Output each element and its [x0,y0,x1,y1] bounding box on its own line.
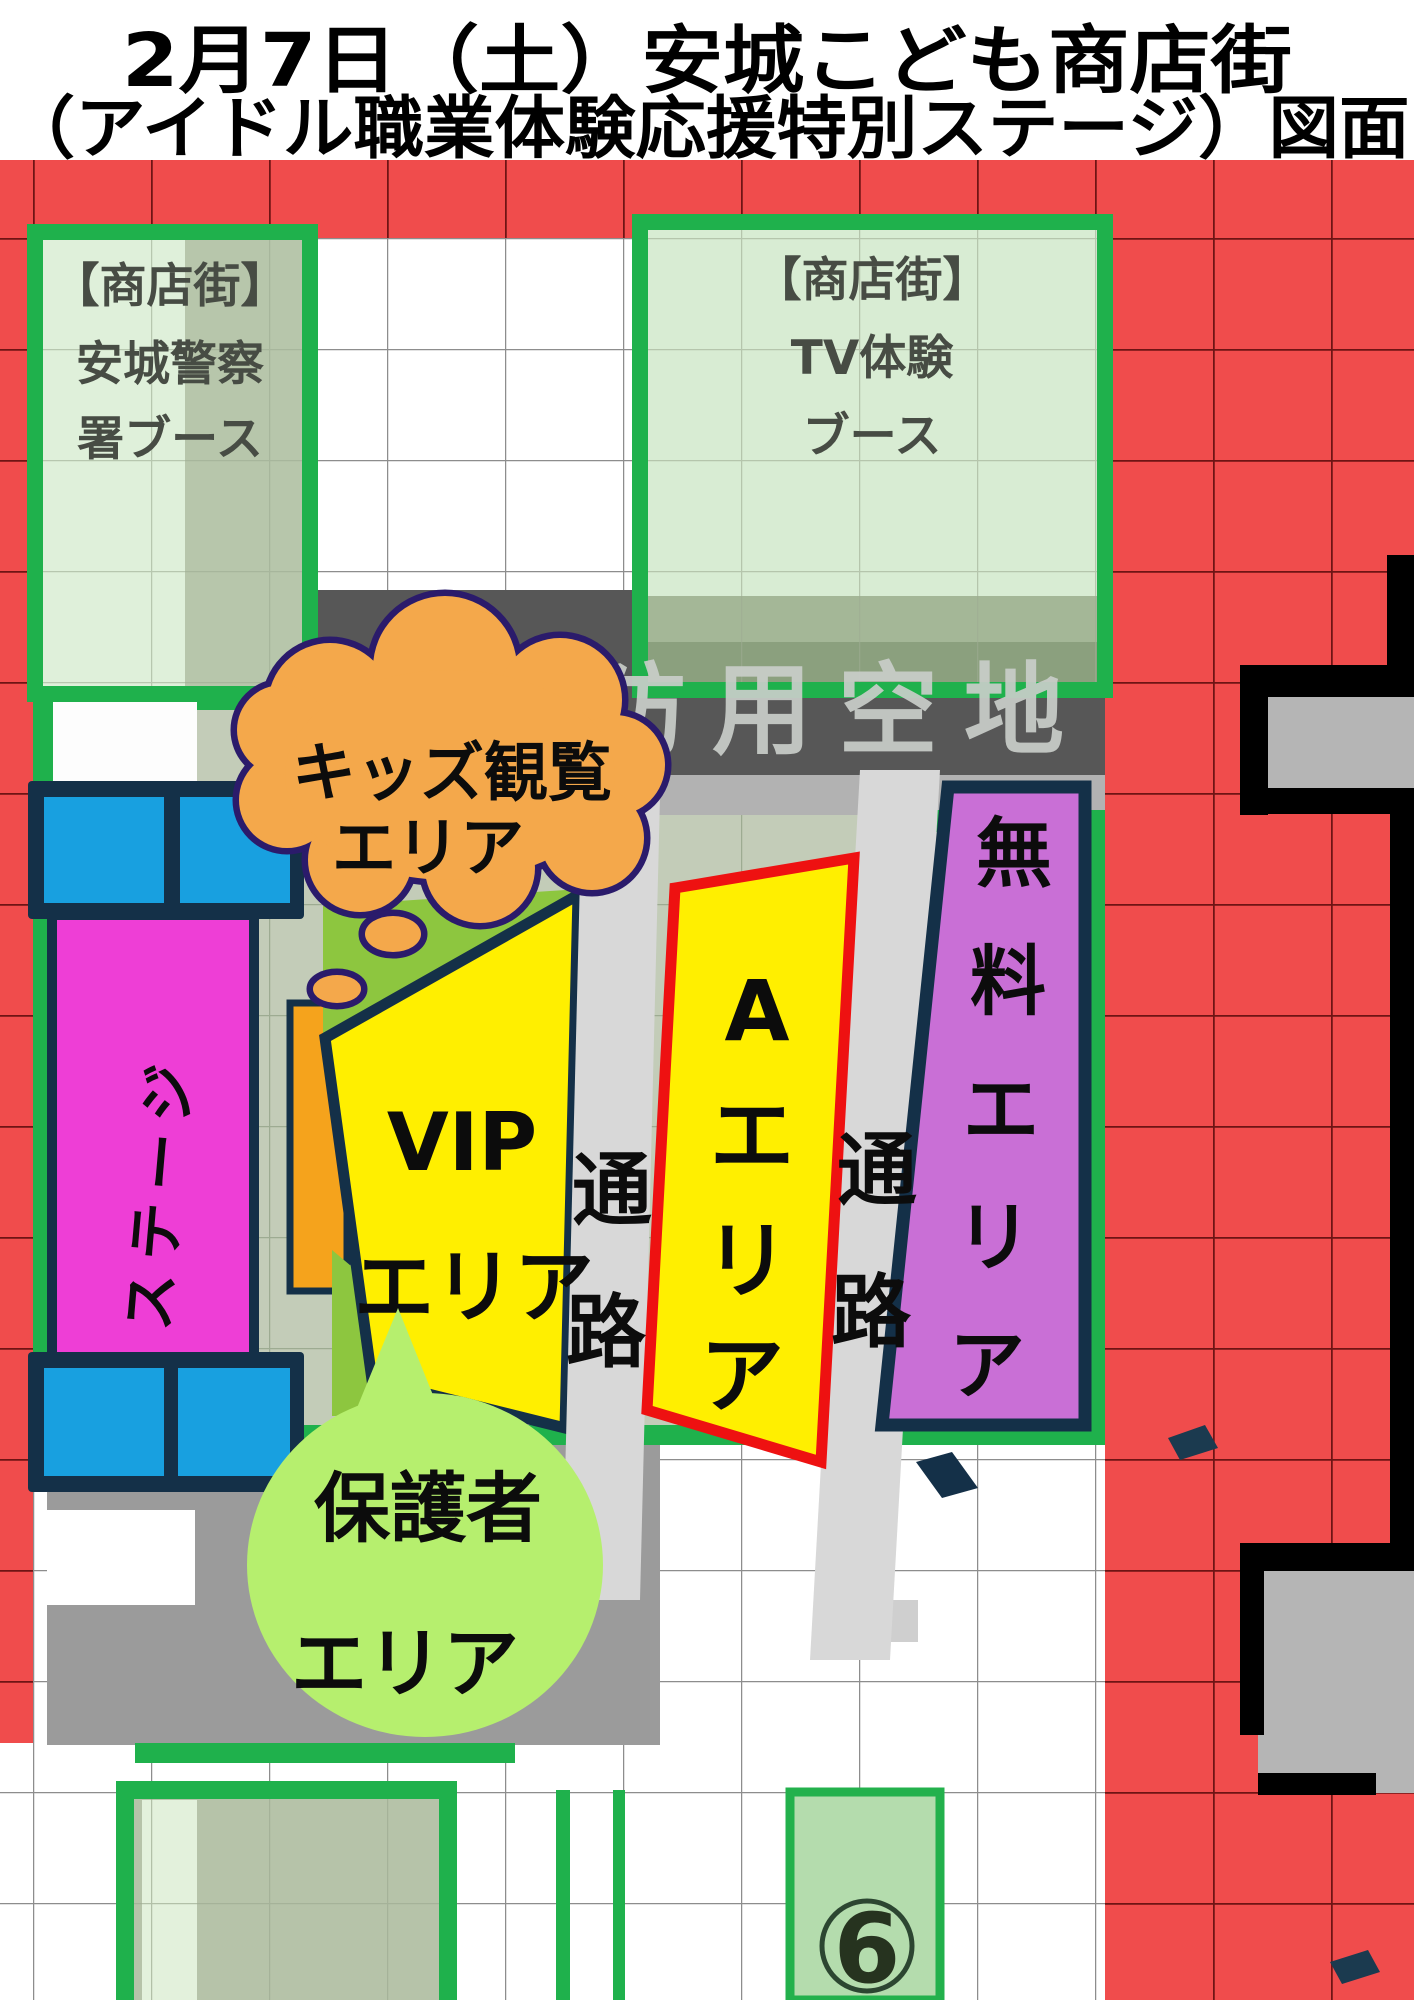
aisle-right-char1: 通 [837,1124,917,1217]
guardian-line2: エリア [291,1619,519,1708]
booth-tv-line2: TV体験 [791,331,954,386]
map-title-line2: （アイドル職業体験応援特別ステージ）図面 [5,90,1410,169]
numbered-booth-6: 6 [790,1792,940,2000]
free-area-char2: 料 [970,937,1046,1026]
booth-police-line3: 署ブース [77,412,263,467]
speaker-box-3 [44,1368,164,1476]
event-floor-map: 2月7日（土）安城こども商店街 （アイドル職業体験応援特別ステージ）図面 【商店… [0,0,1414,2000]
a-area-char4: ア [700,1327,784,1425]
booth-tv: 【商店街】 TV体験 ブース [640,222,1105,690]
a-area-char2: エ [710,1087,794,1185]
booth-tv-line1: 【商店街】 [755,253,990,308]
a-area-char3: リ [705,1212,789,1310]
booth-police-line1: 【商店街】 [53,259,288,314]
speaker-box-1 [44,797,164,903]
circle-6-number: 6 [834,1893,901,2000]
bottom-left-booth [125,1790,448,2000]
free-area-char5: ア [949,1321,1025,1410]
free-area-char3: エ [963,1065,1039,1154]
vip-label-line1: VIP [387,1096,537,1189]
white-cell-upper [53,697,197,790]
booth-tv-line3: ブース [803,409,942,464]
aisle-left-char2: 路 [566,1286,647,1379]
green-fence-2 [613,1790,625,2000]
green-fence-1 [556,1790,570,2000]
white-cell-lower [47,1510,195,1605]
free-area-char4: リ [956,1193,1032,1282]
vip-label-line2: エリア [354,1241,594,1334]
booth-police-line2: 安城警察 [76,337,264,392]
a-area-char1: A [724,962,789,1060]
kids-cloud-line2: エリア [332,812,524,886]
guardian-line1: 保護者 [314,1464,542,1553]
bottom-green-line [135,1743,515,1763]
aisle-left-char1: 通 [572,1144,652,1237]
speaker-box-4 [178,1368,290,1476]
booth-police: 【商店街】 安城警察 署ブース [35,232,310,694]
kids-cloud-line1: キッズ観覧 [292,737,612,811]
free-area-char1: 無 [976,809,1052,898]
aisle-right-char2: 路 [831,1266,912,1359]
